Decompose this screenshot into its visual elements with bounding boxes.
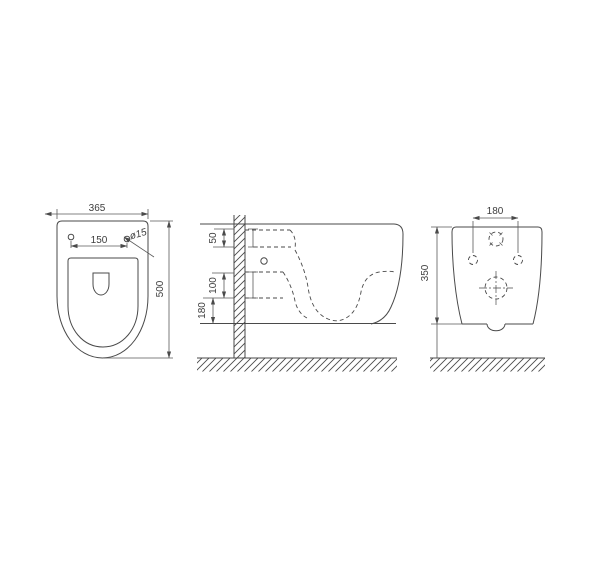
toilet-technical-drawing: 365 150 ø15 500 xyxy=(0,0,600,579)
trap-inner-curve xyxy=(283,272,309,319)
extension-line xyxy=(431,227,462,358)
side-fixing-hole xyxy=(261,258,267,264)
inlet-ticks xyxy=(490,233,503,246)
extension-line xyxy=(473,221,518,253)
rear-right-bolt-hole xyxy=(514,256,523,265)
floor-hatch xyxy=(197,359,397,372)
wall-hatch xyxy=(234,215,245,358)
inlet-reference-bar xyxy=(248,229,258,247)
plan-view: 365 150 ø15 500 xyxy=(45,203,173,358)
trap-outer-curve xyxy=(295,250,395,321)
side-outlet-offset-dimension: 100 xyxy=(203,273,234,298)
floor-hatch xyxy=(430,359,545,372)
rear-bottom-notch xyxy=(487,324,505,331)
rear-bolt-spacing-label: 180 xyxy=(487,206,504,217)
technical-drawing-page: 365 150 ø15 500 xyxy=(0,0,600,579)
side-inlet-offset-dimension: 50 xyxy=(208,229,234,247)
side-outlet-height-label: 180 xyxy=(197,302,208,319)
side-inlet-offset-label: 50 xyxy=(208,232,219,244)
rear-height-label: 350 xyxy=(420,264,431,281)
drain-reference-bar xyxy=(248,272,258,298)
plan-width-label: 365 xyxy=(89,203,106,214)
outlet-centerlines xyxy=(479,271,513,305)
plan-hole-spacing-label: 150 xyxy=(91,235,108,246)
plan-depth-label: 500 xyxy=(155,280,166,297)
rear-left-bolt-hole xyxy=(469,256,478,265)
side-view: 50 100 180 xyxy=(197,215,403,372)
wall-section xyxy=(234,215,245,358)
plan-width-dimension: 365 xyxy=(45,203,148,219)
side-floor xyxy=(197,358,397,372)
plan-left-mounting-hole xyxy=(68,234,74,240)
rear-body-outline xyxy=(452,227,542,324)
rear-bolt-spacing-dimension: 180 xyxy=(473,206,518,253)
hidden-water-channels xyxy=(245,230,395,321)
side-body-front-curve xyxy=(371,224,403,324)
rear-view: 180 350 xyxy=(420,206,545,372)
rear-floor xyxy=(430,358,545,372)
plan-hole-diameter-label: ø15 xyxy=(129,227,149,242)
plan-flush-outlet-shape xyxy=(93,273,109,295)
inlet-channel-end xyxy=(290,230,295,248)
rear-waste-outlet xyxy=(479,271,513,305)
plan-hole-spacing-dimension: 150 xyxy=(71,235,127,248)
side-outlet-offset-label: 100 xyxy=(208,277,219,294)
rear-water-inlet xyxy=(489,232,503,246)
side-outlet-height-dimension: 180 xyxy=(197,298,213,324)
plan-seat-outline xyxy=(68,258,138,347)
